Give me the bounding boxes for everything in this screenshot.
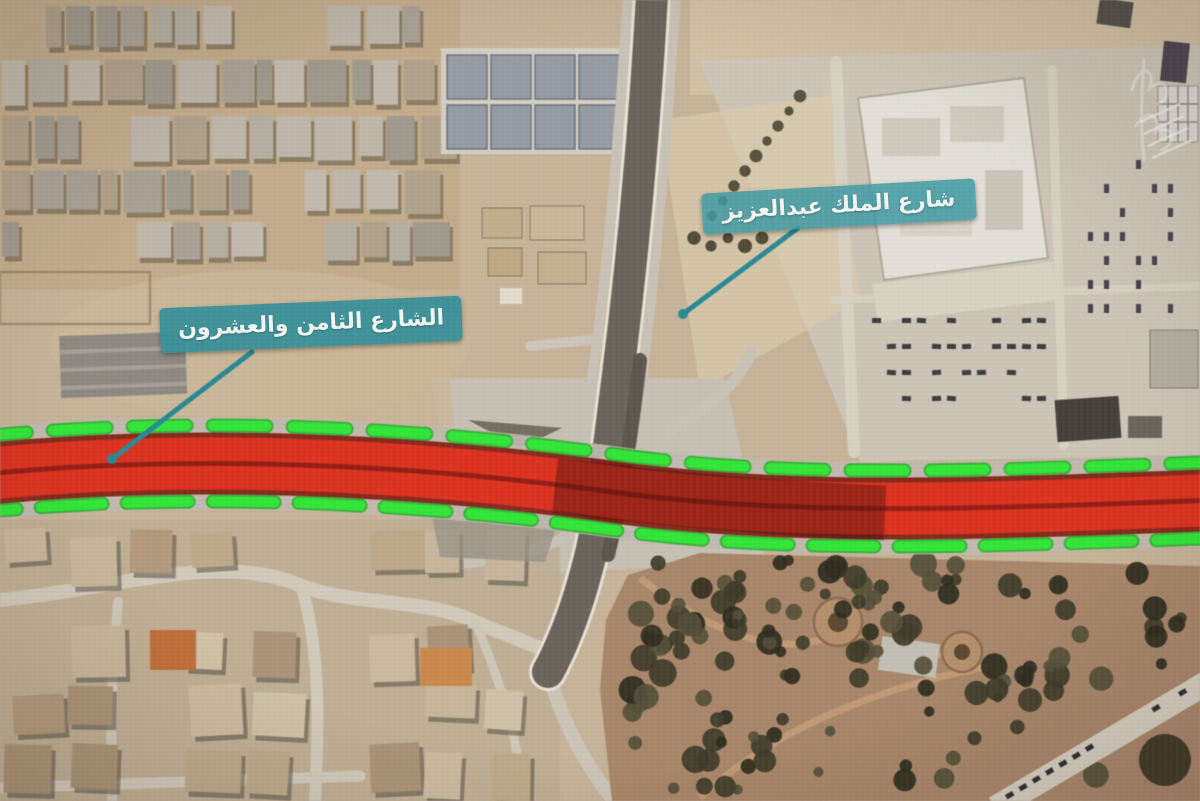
tree: [846, 642, 867, 663]
building: [137, 222, 171, 258]
car: [932, 370, 941, 376]
building: [423, 751, 462, 799]
tree: [1168, 616, 1185, 633]
car: [1007, 370, 1016, 376]
car: [1037, 396, 1046, 401]
building: [206, 222, 228, 258]
tree: [1049, 647, 1071, 669]
tree: [784, 106, 793, 115]
tree: [783, 555, 794, 566]
car: [1152, 184, 1157, 193]
building: [276, 116, 311, 157]
car: [1152, 256, 1157, 265]
tree: [1145, 625, 1168, 648]
tree: [733, 610, 743, 620]
tree: [918, 680, 935, 697]
tree: [696, 778, 713, 795]
tree: [849, 668, 869, 688]
building: [369, 633, 416, 682]
building: [71, 743, 118, 790]
tree: [691, 578, 712, 599]
car: [1022, 396, 1031, 401]
tree: [1010, 720, 1025, 735]
tree: [880, 611, 903, 634]
car: [1104, 232, 1109, 241]
building: [30, 60, 65, 102]
car: [1168, 232, 1173, 241]
building: [484, 689, 524, 731]
tree: [834, 600, 852, 618]
building: [70, 536, 118, 587]
car: [992, 344, 1001, 349]
building: [369, 742, 421, 793]
tree: [775, 646, 786, 657]
car: [1022, 318, 1031, 323]
building: [274, 60, 304, 102]
orange-roof-building: [420, 648, 472, 686]
building: [2, 116, 29, 161]
car: [1104, 304, 1109, 313]
building: [368, 6, 400, 44]
building: [2, 170, 30, 210]
car: [1037, 344, 1046, 349]
building: [308, 60, 347, 102]
tree: [852, 595, 866, 609]
car: [887, 344, 896, 349]
car: [977, 370, 986, 375]
tree: [893, 769, 916, 792]
building: [188, 683, 243, 737]
building: [131, 116, 170, 162]
tree: [1126, 562, 1149, 585]
tree: [934, 768, 955, 789]
building: [361, 222, 386, 257]
building: [231, 170, 249, 210]
satellite-basemap: [0, 0, 1200, 801]
car: [1168, 208, 1173, 217]
building: [212, 116, 246, 159]
tree: [762, 624, 775, 637]
car: [1104, 256, 1109, 265]
tree: [862, 624, 879, 641]
building: [58, 116, 79, 159]
car: [1022, 344, 1031, 350]
tree: [985, 678, 1008, 701]
dark-roof-building: [1055, 396, 1122, 442]
car: [947, 344, 956, 349]
car: [962, 344, 971, 349]
tree: [1139, 734, 1191, 786]
tree: [765, 598, 781, 614]
tree: [786, 604, 802, 620]
building: [252, 692, 307, 738]
building: [185, 749, 242, 794]
car: [1088, 304, 1093, 313]
building: [12, 694, 65, 736]
building: [197, 170, 227, 210]
building: [174, 116, 207, 160]
map-viewport: شارع الملك عبدالعزيز الشارع الثامن والعش…: [0, 0, 1200, 801]
tree: [748, 731, 759, 742]
tree: [1049, 575, 1068, 594]
tree: [834, 560, 846, 572]
car: [947, 396, 956, 402]
car: [1168, 304, 1173, 313]
building: [333, 170, 361, 209]
tree: [776, 713, 788, 725]
tree: [651, 556, 666, 571]
car: [1007, 344, 1016, 349]
building: [305, 170, 327, 211]
building: [246, 750, 290, 796]
tree: [715, 652, 734, 671]
tree: [871, 645, 884, 658]
tree: [1089, 666, 1113, 690]
tree: [728, 180, 739, 191]
building: [402, 6, 420, 43]
tree: [900, 759, 913, 772]
tree: [678, 612, 702, 636]
car: [1168, 184, 1173, 193]
building: [352, 60, 370, 100]
building: [71, 625, 126, 678]
car: [1136, 256, 1141, 265]
car: [962, 370, 971, 375]
building: [178, 60, 216, 103]
tree: [784, 668, 800, 684]
tree: [924, 706, 934, 716]
car: [932, 396, 941, 401]
building: [191, 532, 234, 568]
building: [174, 222, 201, 259]
building: [257, 60, 273, 100]
car: [1136, 280, 1141, 289]
building: [325, 222, 357, 261]
car: [1037, 318, 1046, 323]
tree: [965, 681, 989, 705]
building: [327, 6, 360, 46]
building: [2, 60, 25, 106]
tree: [1143, 596, 1167, 620]
tree: [716, 737, 727, 748]
tree: [710, 712, 725, 727]
tree: [947, 556, 965, 574]
tree: [714, 776, 736, 798]
tree: [668, 783, 679, 794]
tree: [794, 90, 807, 103]
car: [902, 318, 911, 323]
tree: [705, 240, 716, 251]
tree: [739, 165, 750, 176]
car: [902, 396, 911, 401]
car: [947, 318, 956, 323]
car: [1104, 280, 1109, 289]
building: [252, 631, 296, 678]
tree: [754, 750, 777, 773]
tree: [998, 573, 1022, 597]
building: [96, 6, 117, 47]
tree: [628, 736, 642, 750]
tree: [1023, 661, 1037, 675]
tree: [682, 746, 709, 773]
tree: [1018, 688, 1042, 712]
car: [1088, 232, 1093, 241]
building: [367, 170, 398, 209]
building: [101, 170, 118, 210]
building: [493, 753, 531, 801]
tree: [671, 598, 686, 613]
orange-roof-building: [150, 630, 196, 670]
tree: [723, 233, 734, 244]
building: [46, 6, 61, 48]
tree: [1156, 658, 1167, 669]
building: [67, 686, 113, 725]
building: [222, 60, 255, 103]
tree: [724, 581, 746, 603]
tree: [1072, 626, 1089, 643]
tree: [796, 636, 810, 650]
tree: [673, 643, 690, 660]
tree: [825, 726, 836, 737]
tree: [938, 583, 959, 604]
building: [35, 116, 55, 159]
building: [120, 6, 144, 46]
building: [130, 529, 173, 573]
tree: [695, 690, 712, 707]
car: [1120, 208, 1125, 217]
building: [315, 116, 352, 161]
building: [387, 116, 415, 160]
building: [69, 60, 100, 101]
building: [371, 530, 426, 570]
building: [389, 222, 410, 261]
building: [358, 116, 383, 156]
tree: [763, 636, 777, 650]
tree: [1055, 599, 1076, 620]
tree: [820, 589, 831, 600]
tree: [633, 684, 658, 709]
tree: [946, 751, 961, 766]
building: [124, 170, 162, 213]
tree: [738, 239, 752, 253]
building: [251, 116, 273, 159]
car: [872, 318, 881, 323]
building: [145, 60, 172, 104]
building: [3, 527, 47, 563]
building: [151, 6, 172, 43]
tree: [687, 231, 700, 244]
tree: [654, 588, 670, 604]
park-area: [600, 551, 1200, 801]
car: [1136, 304, 1141, 313]
building: [105, 60, 143, 100]
building: [4, 744, 52, 794]
tree: [800, 577, 815, 592]
building: [405, 170, 440, 214]
tree: [756, 232, 769, 245]
tree: [641, 625, 663, 647]
car: [1136, 160, 1141, 169]
car: [932, 344, 941, 349]
car: [1120, 232, 1125, 241]
car: [992, 318, 1001, 323]
tree: [628, 601, 654, 627]
building: [2, 222, 19, 257]
tree: [968, 731, 982, 745]
building: [34, 170, 64, 209]
overpass-shadow-segment: [555, 486, 885, 513]
car: [887, 370, 896, 376]
tree: [772, 120, 783, 131]
building: [231, 222, 263, 257]
car: [902, 344, 911, 349]
tree: [843, 565, 867, 589]
car: [1104, 184, 1109, 193]
building: [404, 60, 435, 100]
building: [167, 170, 191, 210]
building: [66, 170, 97, 210]
tree: [941, 574, 953, 586]
tree: [750, 150, 763, 163]
building: [66, 6, 91, 45]
tree: [814, 767, 824, 777]
building: [424, 683, 476, 718]
building: [412, 222, 450, 257]
car: [1088, 280, 1093, 289]
car: [917, 318, 926, 324]
building: [374, 60, 399, 105]
car: [902, 370, 911, 375]
building: [175, 6, 197, 45]
tree: [910, 551, 937, 578]
building: [203, 6, 231, 44]
tree: [762, 136, 771, 145]
tree: [649, 659, 677, 687]
tree: [914, 656, 932, 674]
